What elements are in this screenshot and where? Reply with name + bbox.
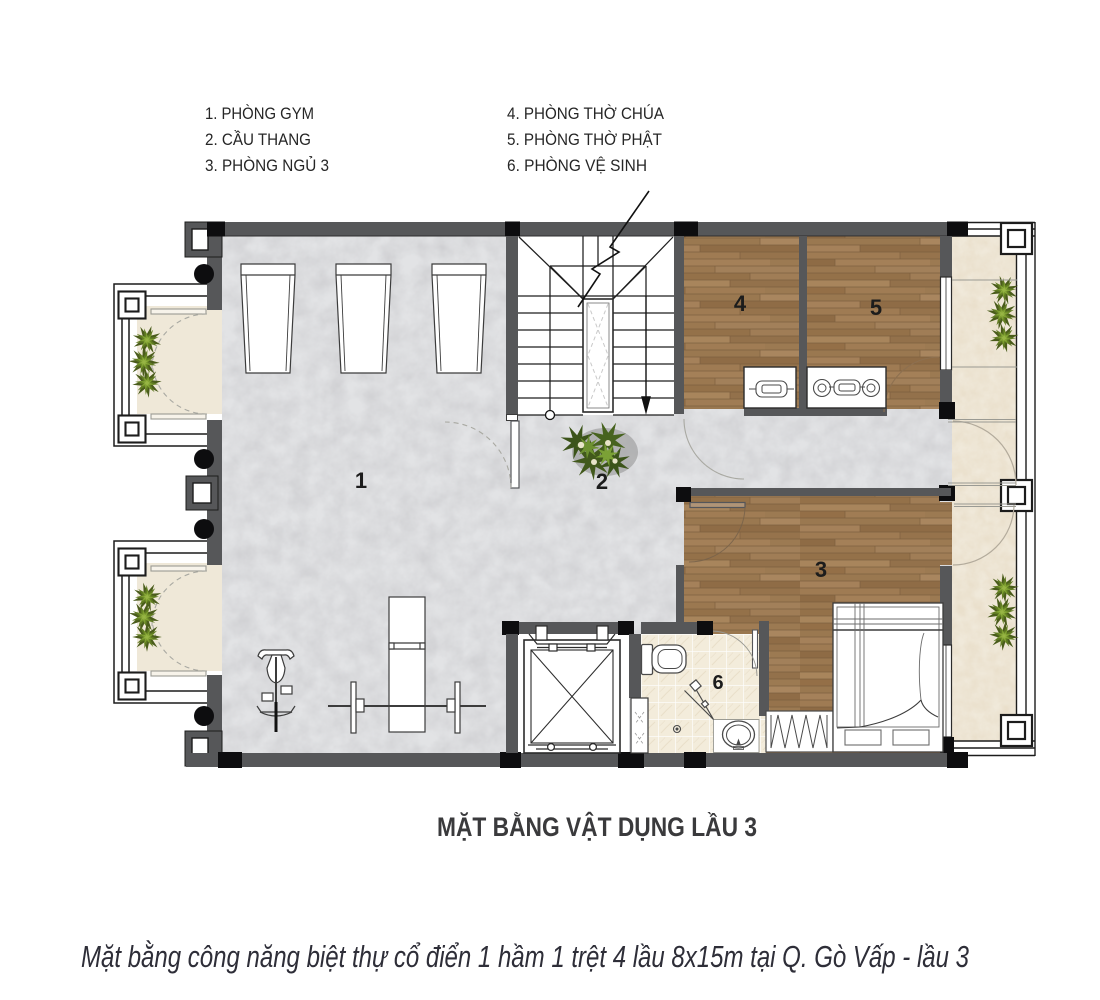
- svg-text:3: 3: [815, 557, 827, 582]
- svg-text:1: 1: [355, 468, 367, 493]
- svg-text:Mặt bằng công năng biệt thự c: Mặt bằng công năng biệt thự cổ điển 1 hầ…: [81, 939, 969, 974]
- svg-text:2. CẦU THANG: 2. CẦU THANG: [205, 130, 311, 149]
- svg-text:4. PHÒNG THỜ CHÚA: 4. PHÒNG THỜ CHÚA: [507, 104, 665, 123]
- svg-text:5: 5: [870, 295, 882, 320]
- svg-text:1. PHÒNG GYM: 1. PHÒNG GYM: [205, 104, 314, 123]
- svg-text:6: 6: [712, 672, 723, 694]
- svg-text:MẶT BẰNG VẬT DỤNG LẦU 3: MẶT BẰNG VẬT DỤNG LẦU 3: [437, 811, 757, 842]
- svg-text:6. PHÒNG VỆ SINH: 6. PHÒNG VỆ SINH: [507, 156, 647, 175]
- svg-text:5. PHÒNG THỜ PHẬT: 5. PHÒNG THỜ PHẬT: [507, 130, 662, 149]
- svg-text:3. PHÒNG NGỦ 3: 3. PHÒNG NGỦ 3: [205, 156, 329, 175]
- svg-text:2: 2: [596, 469, 608, 494]
- svg-text:4: 4: [734, 291, 747, 316]
